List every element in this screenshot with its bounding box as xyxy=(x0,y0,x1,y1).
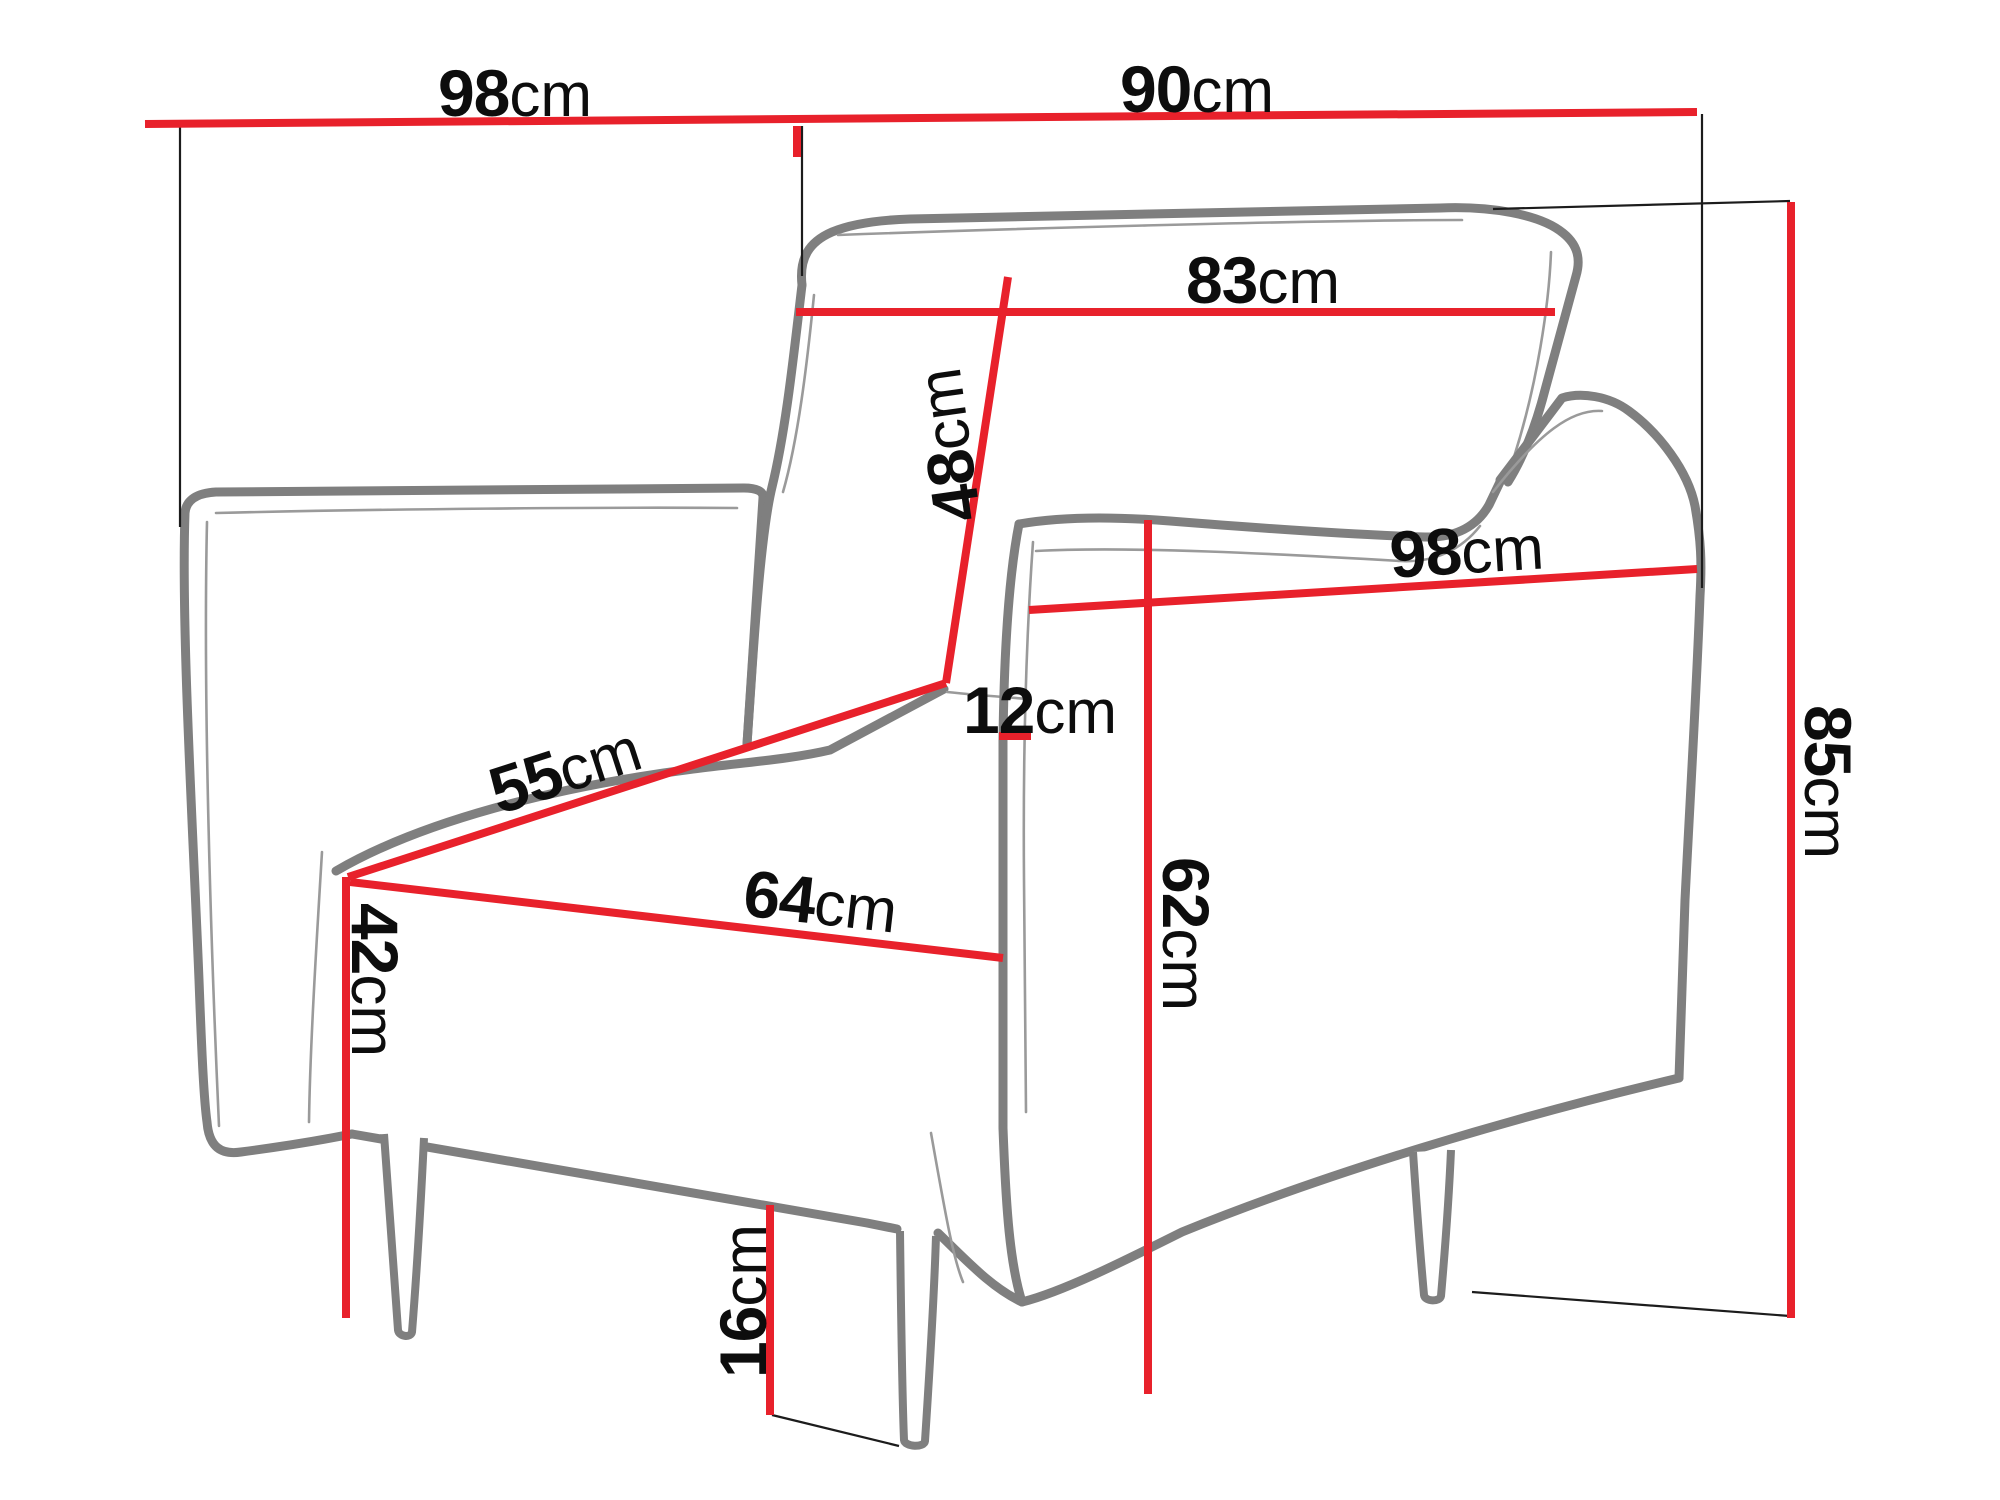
label-42-seat-height: 42cm xyxy=(338,903,412,1057)
base-bottom-right-edge xyxy=(938,1078,1679,1302)
dimension-line-98-top xyxy=(145,112,1697,124)
left-panel-outline xyxy=(184,488,763,1153)
floor-line-right xyxy=(1472,1292,1790,1316)
label-90-top: 90cm xyxy=(1120,52,1274,126)
label-98-top: 98cm xyxy=(438,56,592,130)
dimension-labels: 98cm 90cm 83cm 48cm 55cm 64cm 12cm 62cm … xyxy=(338,52,1865,1378)
backrest-left-edge xyxy=(747,285,802,744)
left-panel-inner-seam xyxy=(309,852,322,1122)
right-cushion-outline xyxy=(1500,395,1701,1078)
diagram-svg: 98cm 90cm 83cm 48cm 55cm 64cm 12cm 62cm … xyxy=(0,0,2000,1500)
label-62-armrest-height: 62cm xyxy=(1149,857,1223,1011)
label-98-side: 98cm xyxy=(1387,508,1545,591)
front-right-leg xyxy=(900,1231,936,1446)
dimension-line-98-side xyxy=(1029,569,1697,610)
left-panel-top-seam xyxy=(216,508,737,513)
dimension-line-64 xyxy=(350,882,1003,958)
label-48-backrest-height: 48cm xyxy=(900,364,995,527)
armrest-front-edge xyxy=(1003,524,1019,1128)
label-12-armrest-gap: 12cm xyxy=(963,673,1117,747)
armrest-front-seam xyxy=(1024,542,1033,1112)
label-83-backrest: 83cm xyxy=(1186,243,1340,317)
base-bottom-left-edge xyxy=(352,1134,897,1229)
label-85-total-height: 85cm xyxy=(1791,705,1865,859)
left-panel-left-seam xyxy=(206,522,219,1126)
label-16-leg-clearance: 16cm xyxy=(706,1224,780,1378)
base-front-right-corner xyxy=(1003,1128,1022,1302)
front-left-leg xyxy=(384,1134,424,1336)
armchair-dimension-diagram: 98cm 90cm 83cm 48cm 55cm 64cm 12cm 62cm … xyxy=(0,0,2000,1500)
rear-right-leg xyxy=(1413,1150,1451,1300)
floor-line-front xyxy=(772,1415,899,1446)
extension-line-back-corner xyxy=(1493,201,1790,209)
